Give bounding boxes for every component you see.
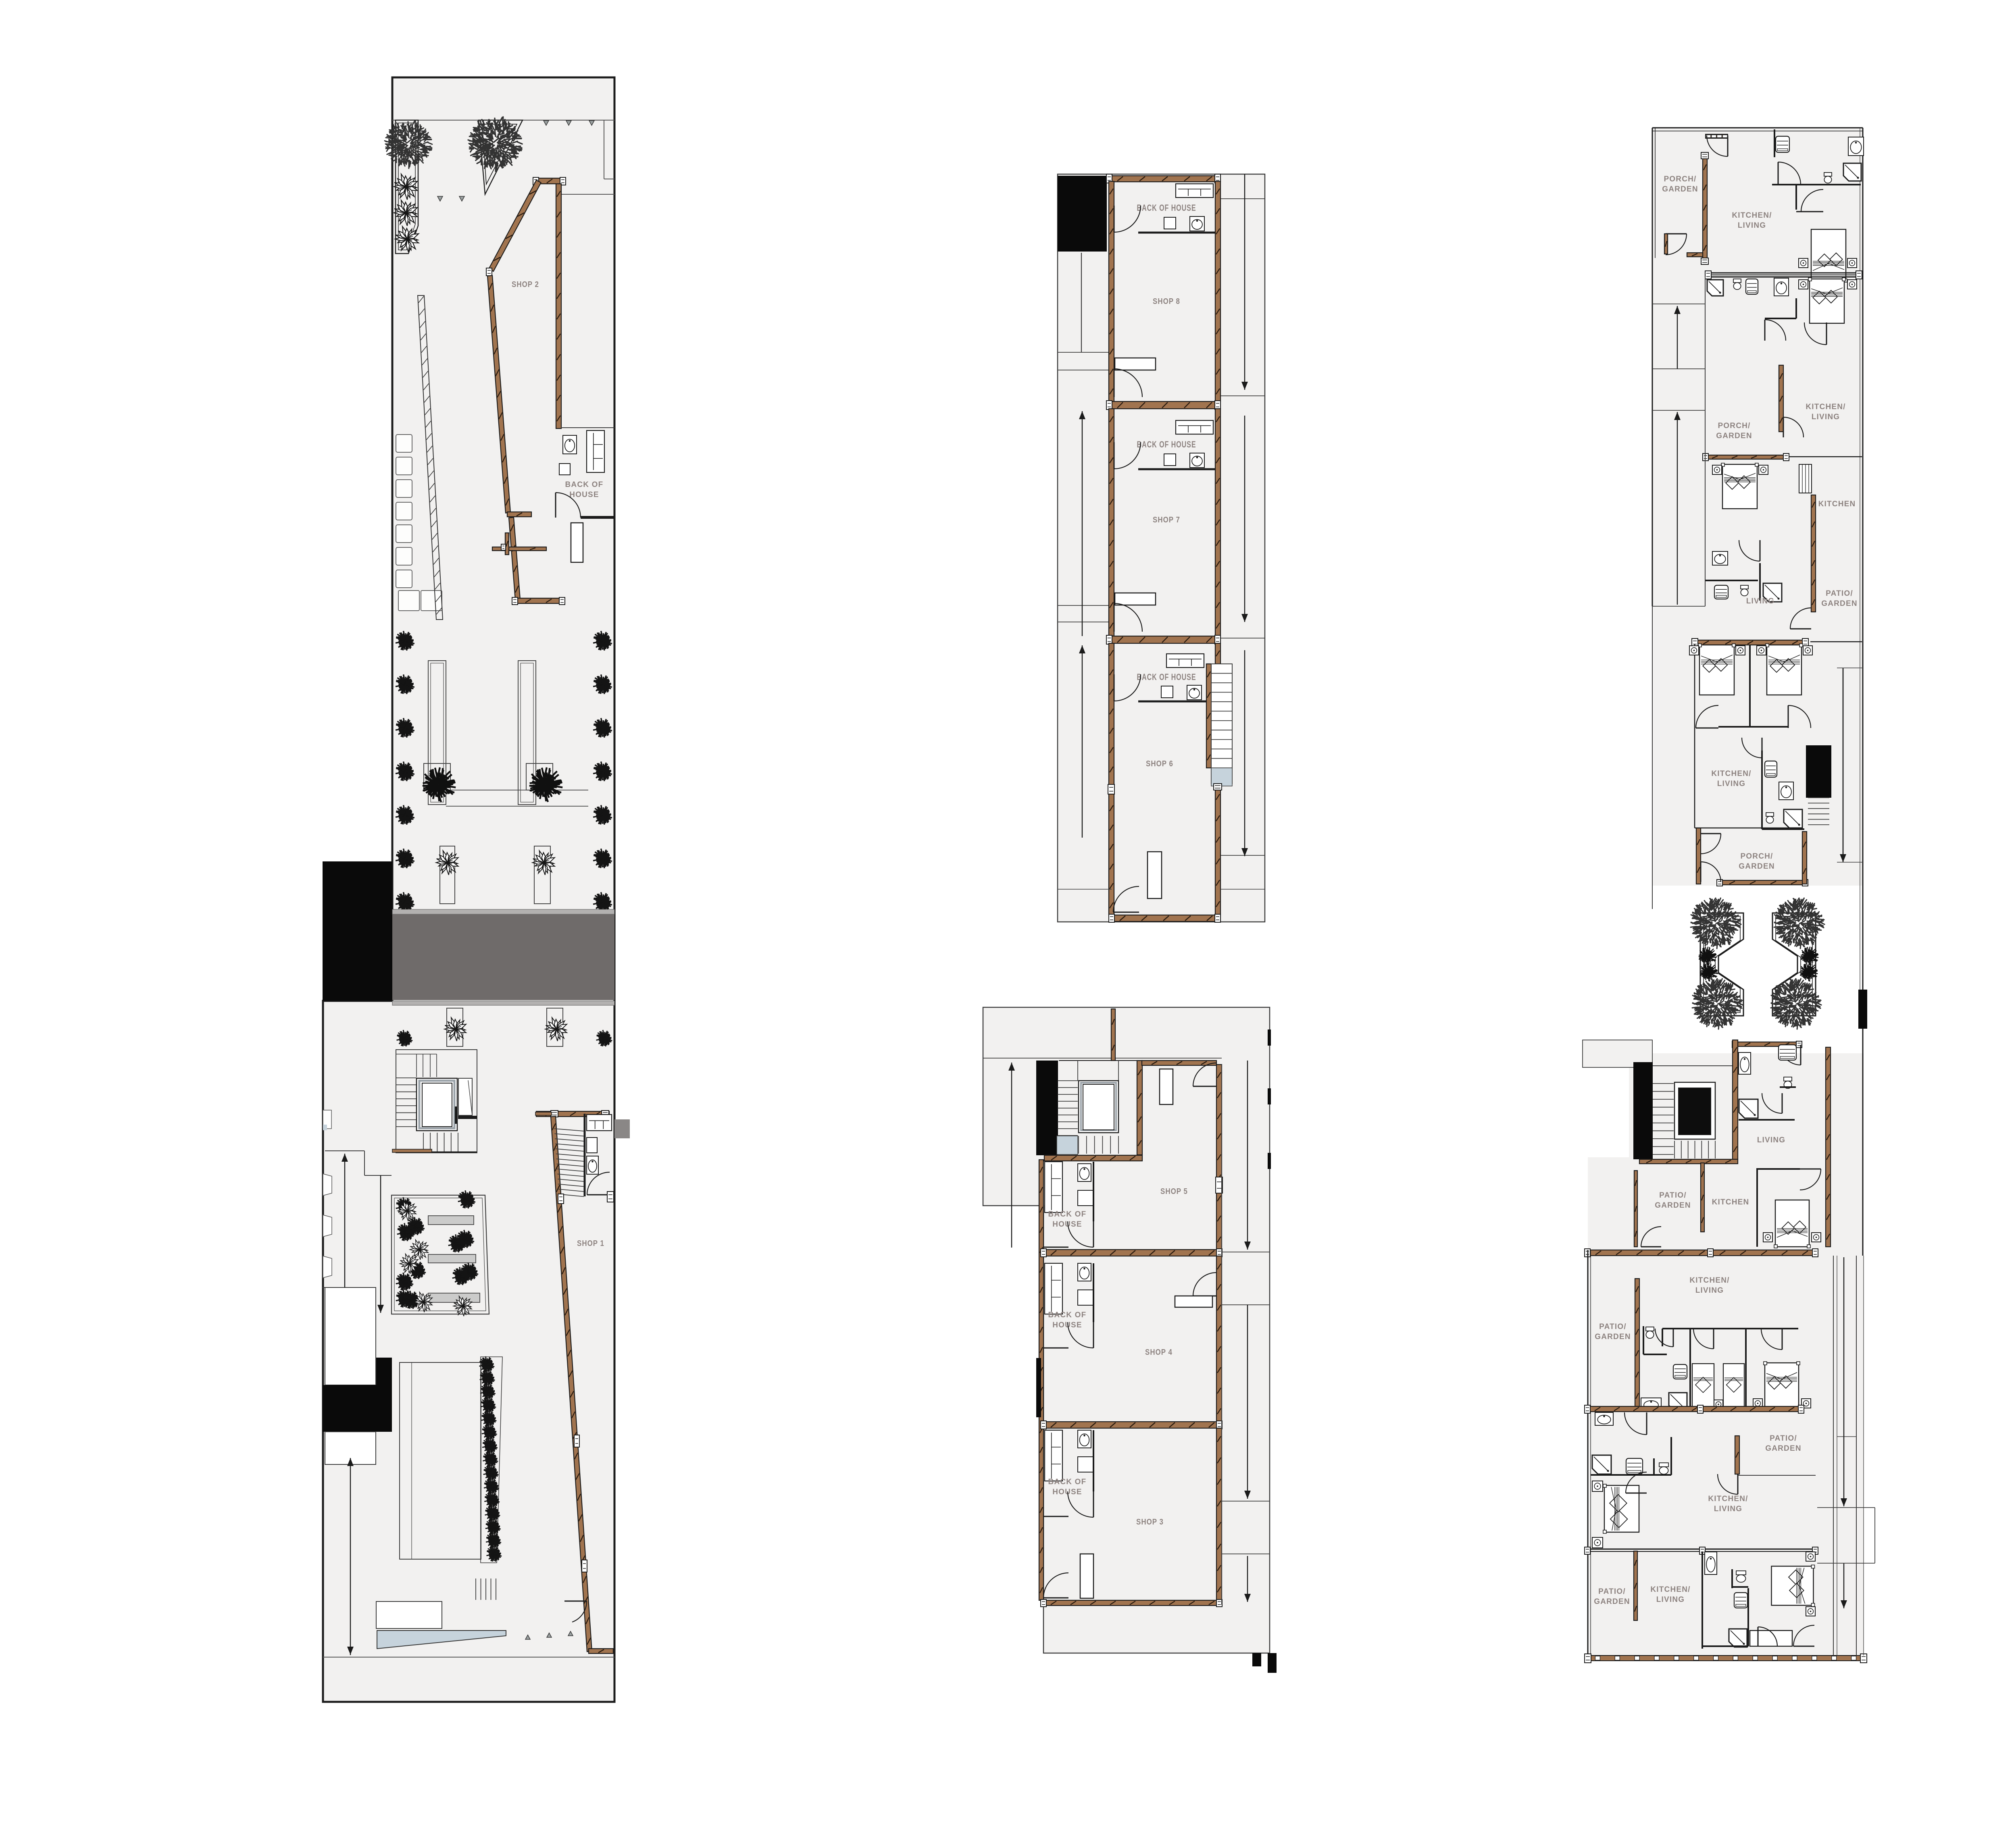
svg-text:BACK OF: BACK OF (1048, 1478, 1087, 1486)
svg-text:SHOP 3: SHOP 3 (1136, 1518, 1164, 1527)
svg-text:PORCH/: PORCH/ (1718, 422, 1750, 430)
svg-text:GARDEN: GARDEN (1716, 432, 1752, 440)
svg-text:PATIO/: PATIO/ (1598, 1587, 1626, 1596)
svg-text:GARDEN: GARDEN (1662, 185, 1698, 193)
svg-text:LIVING: LIVING (1695, 1286, 1724, 1295)
svg-text:KITCHEN: KITCHEN (1712, 1198, 1749, 1206)
svg-text:BACK OF: BACK OF (1048, 1210, 1087, 1219)
svg-text:SHOP 2: SHOP 2 (512, 280, 539, 289)
svg-text:SHOP 7: SHOP 7 (1153, 516, 1180, 524)
svg-text:PATIO/: PATIO/ (1599, 1323, 1627, 1331)
svg-text:HOUSE: HOUSE (569, 491, 599, 499)
svg-text:PATIO/: PATIO/ (1659, 1191, 1687, 1200)
svg-text:PORCH/: PORCH/ (1664, 175, 1696, 183)
svg-text:GARDEN: GARDEN (1655, 1201, 1691, 1210)
svg-text:SHOP 5: SHOP 5 (1160, 1187, 1188, 1196)
svg-text:SHOP 6: SHOP 6 (1146, 759, 1173, 768)
svg-text:SHOP 1: SHOP 1 (577, 1239, 604, 1248)
svg-text:BACK OF HOUSE: BACK OF HOUSE (1137, 672, 1196, 682)
svg-text:BACK OF: BACK OF (565, 480, 604, 489)
svg-text:KITCHEN/: KITCHEN/ (1806, 403, 1845, 411)
svg-text:PATIO/: PATIO/ (1826, 589, 1853, 598)
svg-text:KITCHEN/: KITCHEN/ (1732, 211, 1772, 220)
svg-text:KITCHEN: KITCHEN (1818, 500, 1856, 508)
svg-text:KITCHEN/: KITCHEN/ (1708, 1495, 1748, 1503)
svg-text:GARDEN: GARDEN (1594, 1597, 1630, 1606)
svg-text:PATIO/: PATIO/ (1770, 1434, 1797, 1443)
svg-text:LIVING: LIVING (1656, 1595, 1685, 1604)
svg-text:LIVING: LIVING (1714, 1505, 1743, 1513)
svg-text:LIVING: LIVING (1812, 413, 1840, 421)
svg-text:BACK OF HOUSE: BACK OF HOUSE (1137, 203, 1196, 213)
svg-text:BACK OF: BACK OF (1048, 1311, 1087, 1319)
svg-text:LIVING: LIVING (1746, 597, 1775, 605)
svg-text:KITCHEN/: KITCHEN/ (1711, 769, 1751, 778)
svg-text:PORCH/: PORCH/ (1740, 852, 1773, 861)
svg-text:SHOP 4: SHOP 4 (1145, 1348, 1173, 1357)
svg-text:KITCHEN/: KITCHEN/ (1689, 1276, 1729, 1285)
svg-text:BACK OF HOUSE: BACK OF HOUSE (1137, 439, 1196, 449)
svg-text:LIVING: LIVING (1717, 780, 1746, 788)
svg-text:GARDEN: GARDEN (1821, 599, 1858, 608)
svg-text:GARDEN: GARDEN (1739, 862, 1775, 871)
svg-text:LIVING: LIVING (1738, 221, 1766, 230)
svg-text:KITCHEN/: KITCHEN/ (1650, 1585, 1690, 1594)
svg-text:SHOP 8: SHOP 8 (1153, 297, 1180, 306)
svg-text:GARDEN: GARDEN (1595, 1333, 1631, 1341)
svg-text:LIVING: LIVING (1757, 1136, 1786, 1144)
svg-text:GARDEN: GARDEN (1765, 1444, 1801, 1453)
